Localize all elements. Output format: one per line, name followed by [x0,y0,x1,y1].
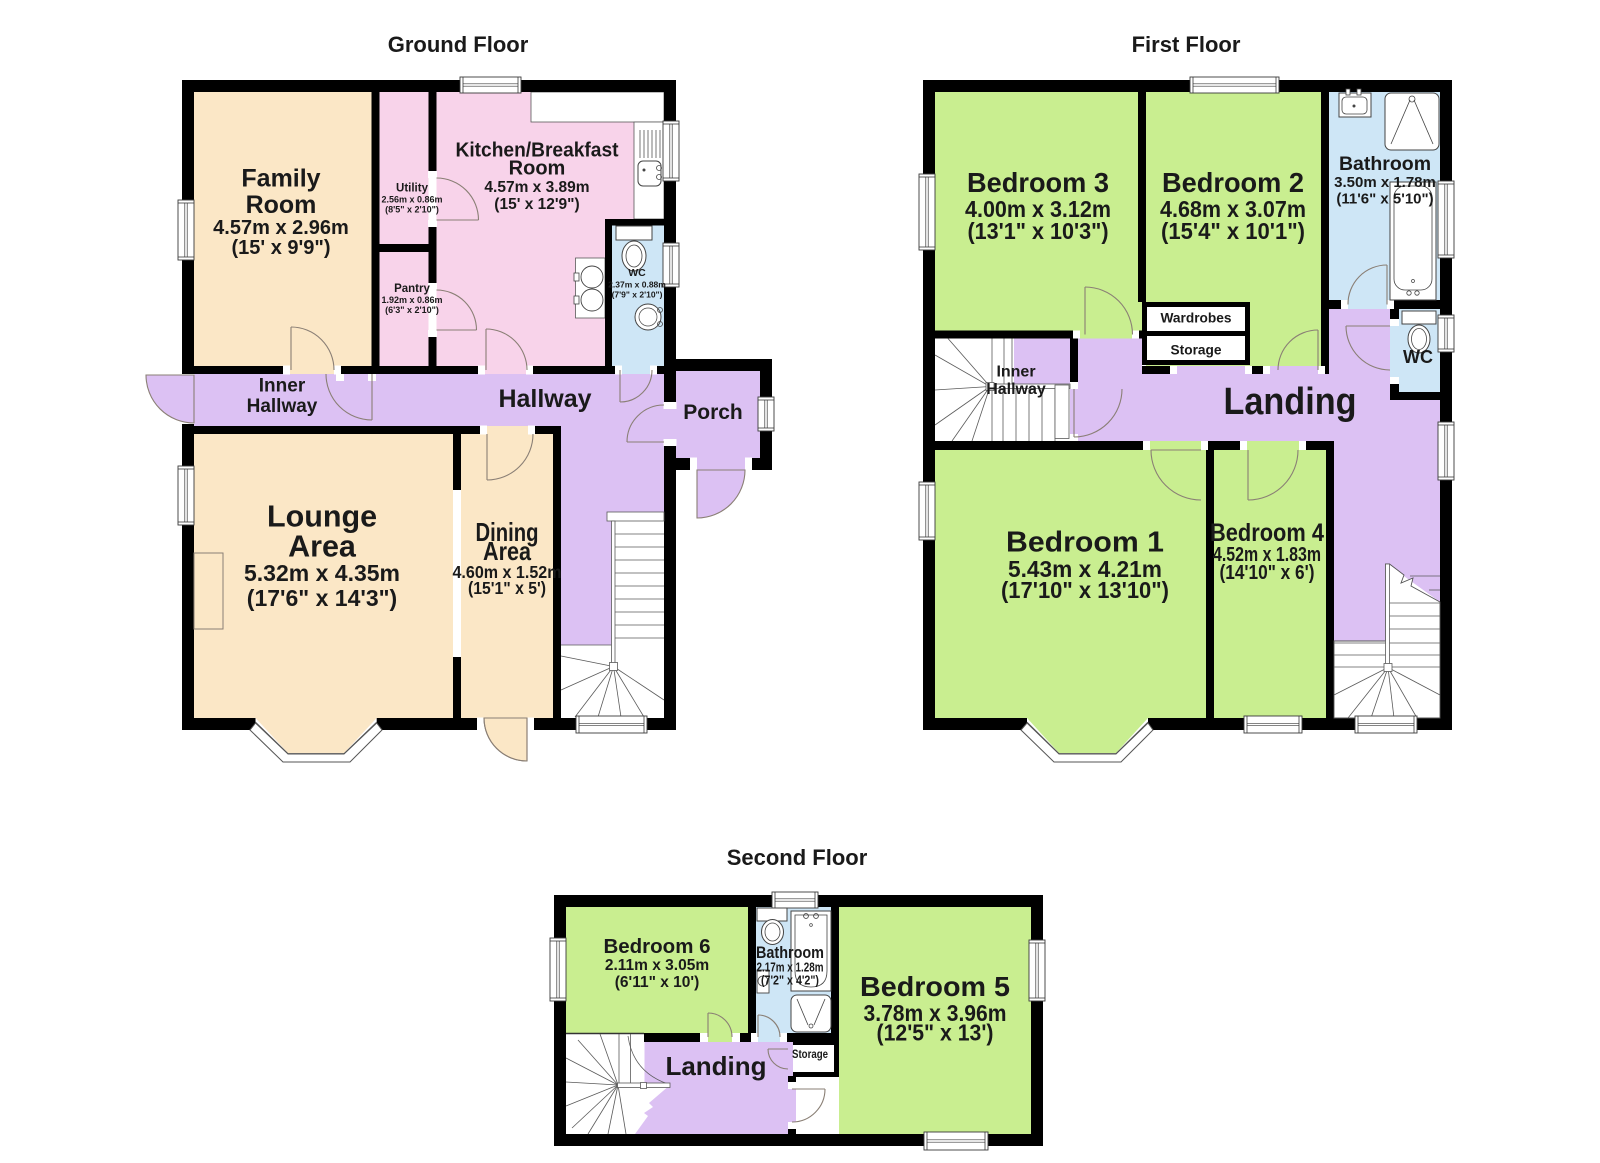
svg-text:(7'2" x 4'2"): (7'2" x 4'2") [761,973,819,988]
svg-text:5.32m x 4.35m: 5.32m x 4.35m [244,560,400,586]
svg-text:(15' x 12'9"): (15' x 12'9") [494,196,579,213]
svg-text:4.57m x 3.89m: 4.57m x 3.89m [484,179,589,196]
svg-text:(17'10" x 13'10"): (17'10" x 13'10") [1001,577,1169,603]
svg-text:Second Floor: Second Floor [727,845,868,870]
svg-text:1.92m x 0.86m: 1.92m x 0.86m [381,295,442,305]
svg-text:Bedroom 4: Bedroom 4 [1210,519,1324,547]
svg-text:Bedroom 6: Bedroom 6 [603,935,710,958]
svg-text:Utility: Utility [396,183,429,195]
svg-text:(6'11" x 10'): (6'11" x 10') [615,974,700,991]
svg-text:Ground Floor: Ground Floor [388,32,529,57]
svg-text:Bedroom 3: Bedroom 3 [967,167,1109,198]
svg-text:Area: Area [288,529,357,563]
svg-text:Storage: Storage [1171,343,1222,358]
svg-text:3.50m x 1.78m: 3.50m x 1.78m [1334,174,1436,191]
svg-text:(7'9" x 2'10"): (7'9" x 2'10") [612,290,663,300]
svg-text:(12'5" x 13'): (12'5" x 13') [877,1020,994,1046]
svg-text:Family: Family [241,165,320,193]
svg-text:Hallway: Hallway [498,385,591,413]
svg-text:Bedroom 1: Bedroom 1 [1006,527,1164,559]
svg-text:4.57m x 2.96m: 4.57m x 2.96m [213,217,349,239]
svg-text:Landing: Landing [665,1051,766,1081]
svg-text:Landing: Landing [1224,381,1357,423]
svg-text:Room: Room [509,158,566,180]
svg-text:(6'3" x 2'10"): (6'3" x 2'10") [385,305,439,315]
svg-text:Inner: Inner [259,376,306,397]
svg-text:Wardrobes: Wardrobes [1161,311,1232,326]
svg-text:(13'1" x 10'3"): (13'1" x 10'3") [968,218,1109,244]
svg-text:(11'6" x 5'10"): (11'6" x 5'10") [1336,191,1433,208]
svg-text:2.37m x 0.88m: 2.37m x 0.88m [608,280,666,290]
svg-text:Lounge: Lounge [267,499,377,533]
svg-text:Porch: Porch [683,401,743,424]
svg-text:Bedroom 5: Bedroom 5 [860,971,1010,1002]
svg-text:Storage: Storage [792,1047,828,1061]
svg-text:First Floor: First Floor [1132,32,1241,57]
svg-text:(8'5" x 2'10"): (8'5" x 2'10") [385,205,439,215]
svg-text:2.56m x 0.86m: 2.56m x 0.86m [381,195,442,205]
svg-text:Hallway: Hallway [986,381,1046,398]
svg-text:Bedroom 2: Bedroom 2 [1162,167,1304,198]
svg-text:(15' x 9'9"): (15' x 9'9") [231,237,330,259]
svg-text:(17'6" x 14'3"): (17'6" x 14'3") [247,585,397,611]
svg-text:(14'10" x 6'): (14'10" x 6') [1220,562,1315,584]
svg-text:2.11m x 3.05m: 2.11m x 3.05m [605,957,709,974]
svg-text:WC: WC [628,267,646,279]
svg-text:Bathroom: Bathroom [1339,153,1431,175]
svg-text:WC: WC [1403,347,1433,367]
svg-text:(15'4" x 10'1"): (15'4" x 10'1") [1161,218,1305,244]
svg-text:(15'1" x 5'): (15'1" x 5') [468,578,546,598]
svg-text:Hallway: Hallway [247,396,318,417]
svg-text:Pantry: Pantry [394,283,430,295]
svg-text:Room: Room [246,191,317,219]
svg-text:Inner: Inner [996,364,1035,381]
